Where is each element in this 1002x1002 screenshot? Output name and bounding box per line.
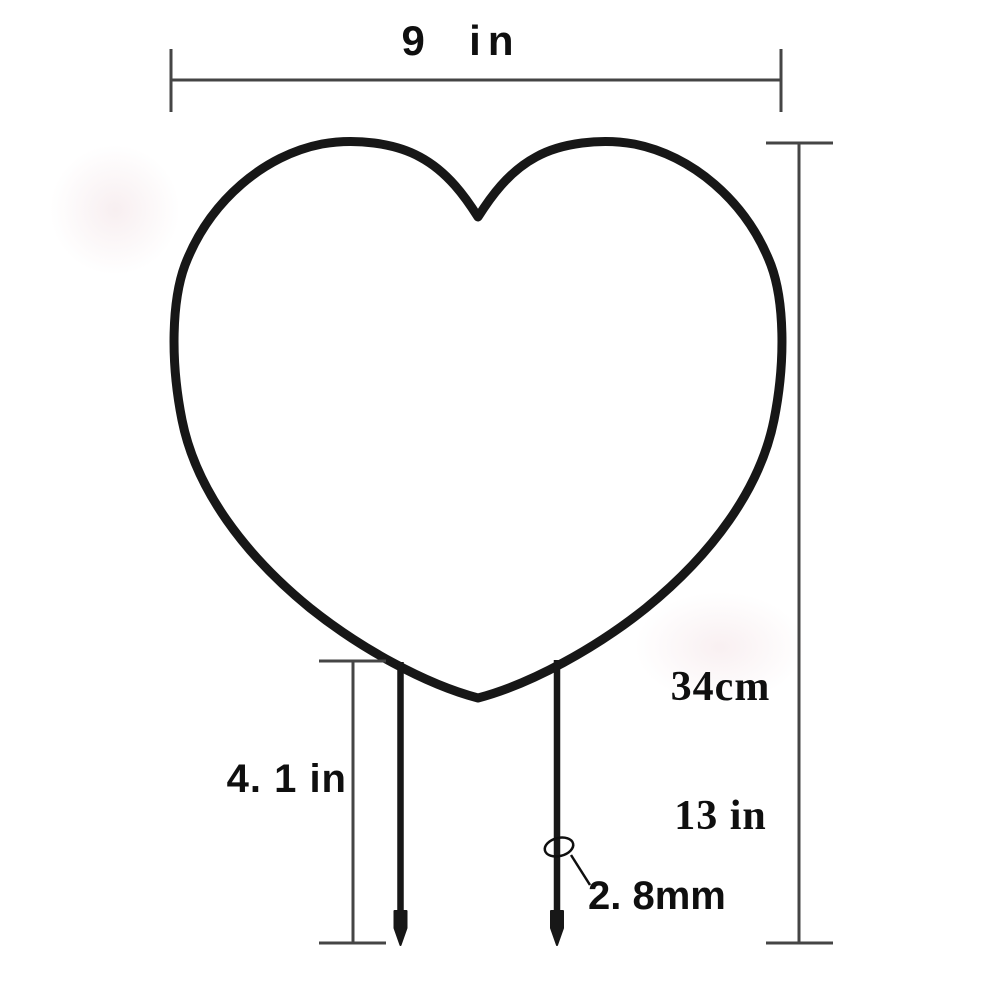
- width-dimension-label: 9 in: [311, 20, 611, 62]
- height-in-label: 13 in: [648, 795, 793, 838]
- wire-thickness-label: 2. 8mm: [588, 876, 726, 916]
- stake-length-label: 4. 1 in: [175, 759, 347, 799]
- wire-thickness-callout: [543, 835, 590, 885]
- right-stake-tip: [551, 911, 563, 945]
- diagram-linework: [0, 0, 1002, 1002]
- left-stake-tip: [395, 911, 407, 945]
- height-cm-label: 34cm: [648, 666, 793, 709]
- stake-length-dimension-line: [319, 661, 386, 943]
- product-dimension-diagram: 9 in 34cm 13 in 4. 1 in 2. 8mm: [0, 0, 1002, 1002]
- height-dimension-label: 34cm 13 in: [648, 580, 793, 924]
